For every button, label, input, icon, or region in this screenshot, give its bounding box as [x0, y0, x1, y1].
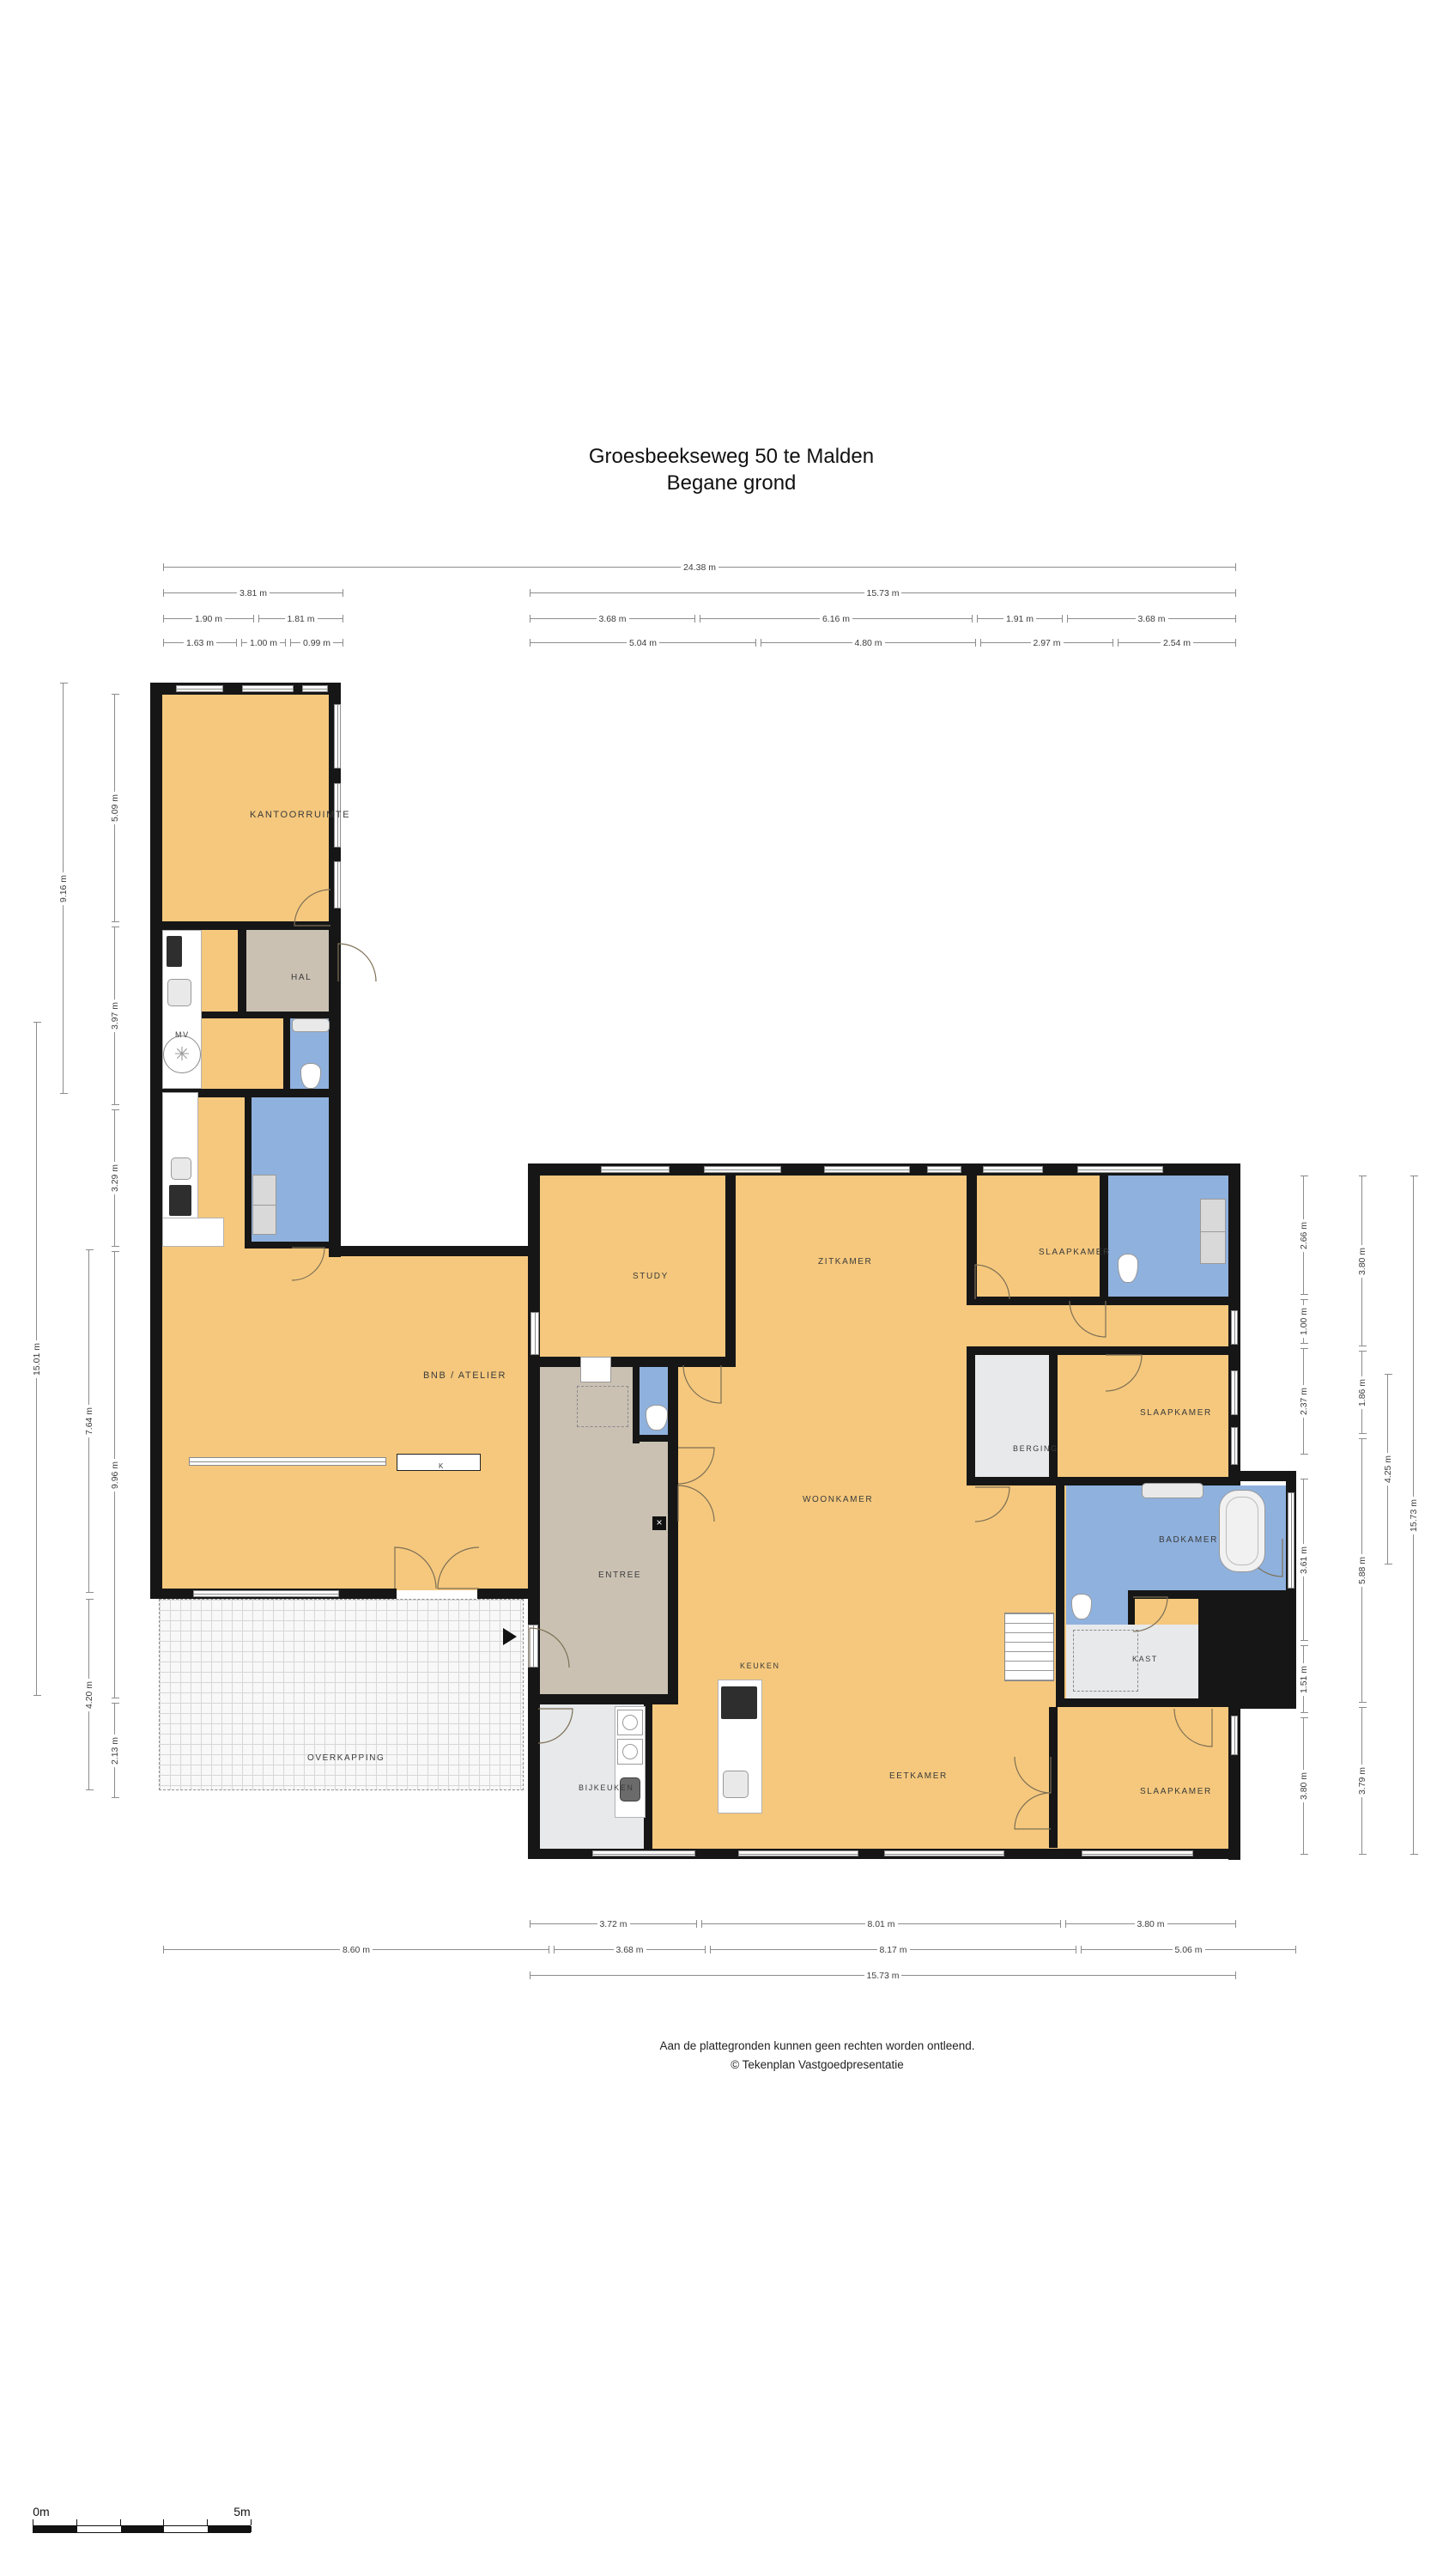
- scale-bar-segment: [33, 2526, 77, 2532]
- dimension-label: 1.00 m: [1299, 1305, 1309, 1338]
- plan-footer: Aan de plattegronden kunnen geen rechten…: [258, 2037, 1377, 2075]
- door-arc: [395, 1547, 436, 1589]
- dimension-label: 2.37 m: [1299, 1385, 1309, 1418]
- fixture-toilet: [1118, 1254, 1138, 1283]
- dimension-v: 3.29 m: [114, 1109, 115, 1247]
- dimension-v: 4.20 m: [88, 1599, 89, 1790]
- dimension-label: 6.16 m: [820, 614, 852, 624]
- door-arc: [975, 1265, 1009, 1299]
- fixture-shower: [252, 1175, 276, 1235]
- dimension-v: 15.01 m: [36, 1022, 37, 1696]
- fixture-washer: [617, 1710, 643, 1735]
- dimension-h: 15.73 m: [530, 1975, 1236, 1976]
- dimension-h: 3.68 m: [554, 1949, 706, 1950]
- floorplan-canvas: ✳×KANTOORRUIMTEHALMVBNB / ATELIERKOVERKA…: [0, 0, 1449, 2576]
- scale-bar-end-label: 5m: [233, 2505, 250, 2518]
- scale-bar-tick: [163, 2519, 164, 2525]
- dimension-v: 3.80 m: [1303, 1717, 1304, 1855]
- scale-bar-tick: [120, 2519, 121, 2525]
- dimension-h: 6.16 m: [700, 618, 973, 619]
- dimension-v: 1.00 m: [1303, 1299, 1304, 1344]
- door-arc: [1015, 1793, 1051, 1829]
- dimension-label: 4.80 m: [852, 638, 884, 648]
- dimension-label: 3.68 m: [613, 1945, 646, 1955]
- door-arc: [678, 1485, 714, 1522]
- dimension-label: 3.61 m: [1299, 1543, 1309, 1576]
- dimension-v: 9.16 m: [63, 683, 64, 1094]
- fixture-counter: [162, 1218, 224, 1247]
- dimension-label: 1.63 m: [184, 638, 216, 648]
- dimension-label: 3.81 m: [237, 588, 270, 598]
- dimension-label: 2.13 m: [110, 1734, 120, 1766]
- dimension-v: 3.97 m: [114, 927, 115, 1105]
- dimension-label: 3.29 m: [110, 1162, 120, 1194]
- dimension-label: 9.16 m: [58, 872, 69, 904]
- dimension-h: 2.97 m: [980, 642, 1113, 643]
- dimension-label: 3.80 m: [1134, 1919, 1167, 1929]
- fixture-sink: [1142, 1483, 1203, 1498]
- fixture-hob: [169, 1185, 191, 1216]
- dimension-label: 5.09 m: [110, 792, 120, 824]
- footer-disclaimer: Aan de plattegronden kunnen geen rechten…: [258, 2037, 1377, 2056]
- dimension-label: 1.90 m: [192, 614, 225, 624]
- dimension-h: 3.68 m: [530, 618, 695, 619]
- dimension-label: 1.00 m: [247, 638, 280, 648]
- dimension-label: 1.81 m: [284, 614, 317, 624]
- dimension-v: 5.88 m: [1361, 1438, 1362, 1703]
- dimension-label: 5.04 m: [627, 638, 659, 648]
- fixture-tub: [1219, 1490, 1265, 1572]
- scale-bar-start-label: 0m: [33, 2505, 49, 2518]
- fixture-hob: [721, 1686, 757, 1719]
- scale-bar-track: [33, 2525, 251, 2533]
- door-arc: [292, 1248, 324, 1280]
- dimension-label: 0.99 m: [300, 638, 333, 648]
- dimension-v: 3.79 m: [1361, 1707, 1362, 1855]
- dimension-v: 3.61 m: [1303, 1479, 1304, 1641]
- dimension-v: 15.73 m: [1413, 1176, 1414, 1855]
- fixture-sink: [171, 1157, 191, 1180]
- door-arcs-layer: [0, 0, 1449, 2576]
- dimension-v: 2.66 m: [1303, 1176, 1304, 1295]
- dimension-v: 9.96 m: [114, 1251, 115, 1698]
- dimension-label: 1.51 m: [1299, 1662, 1309, 1695]
- dimension-label: 2.66 m: [1299, 1218, 1309, 1251]
- fixture-fan: ✳: [163, 1036, 201, 1073]
- dimension-h: 0.99 m: [290, 642, 343, 643]
- dimension-h: 24.38 m: [163, 567, 1236, 568]
- scale-bar-tick: [251, 2519, 252, 2525]
- dimension-label: 2.54 m: [1161, 638, 1193, 648]
- fixture-wardrobe: [580, 1357, 611, 1382]
- door-arc: [1106, 1355, 1142, 1391]
- dimension-label: 15.01 m: [32, 1340, 42, 1378]
- dimension-h: 8.17 m: [710, 1949, 1076, 1950]
- fixture-stairs: [1004, 1613, 1054, 1681]
- fixture-arrow: [503, 1628, 517, 1645]
- dimension-h: 1.63 m: [163, 642, 237, 643]
- fixture-dashed: [577, 1386, 628, 1427]
- dimension-v: 2.13 m: [114, 1703, 115, 1798]
- fixture-dashed: [1073, 1630, 1138, 1692]
- door-arc: [530, 1628, 569, 1668]
- fixture-toilet: [300, 1063, 321, 1089]
- fixture-toilet: [1071, 1594, 1092, 1619]
- scale-bar-segment: [77, 2526, 121, 2532]
- dimension-label: 1.86 m: [1357, 1376, 1367, 1408]
- dimension-h: 5.04 m: [530, 642, 756, 643]
- dimension-v: 2.37 m: [1303, 1348, 1304, 1455]
- door-arc: [1070, 1301, 1106, 1337]
- dimension-label: 3.72 m: [597, 1919, 629, 1929]
- dimension-v: 1.86 m: [1361, 1351, 1362, 1434]
- dimension-label: 5.06 m: [1172, 1945, 1204, 1955]
- dimension-h: 15.73 m: [530, 592, 1236, 593]
- scale-bar-tick: [33, 2519, 33, 2525]
- dimension-label: 8.17 m: [876, 1945, 909, 1955]
- door-arc: [438, 1547, 479, 1589]
- door-arc: [538, 1709, 573, 1743]
- dimension-v: 3.80 m: [1361, 1176, 1362, 1346]
- dimension-label: 3.68 m: [596, 614, 628, 624]
- dimension-label: 3.80 m: [1299, 1770, 1309, 1802]
- fixture-washer: [617, 1739, 643, 1765]
- dimension-label: 3.68 m: [1135, 614, 1167, 624]
- dimension-h: 2.54 m: [1118, 642, 1236, 643]
- door-arc: [975, 1487, 1009, 1522]
- fixture-hob: [167, 936, 182, 967]
- dimension-label: 15.73 m: [864, 588, 902, 598]
- dimension-label: 8.60 m: [340, 1945, 373, 1955]
- door-arc: [338, 944, 376, 981]
- dimension-label: 1.91 m: [1003, 614, 1036, 624]
- dimension-v: 4.25 m: [1387, 1374, 1388, 1564]
- fixture-sink: [167, 979, 191, 1006]
- door-arc: [678, 1448, 714, 1484]
- dimension-label: 2.97 m: [1030, 638, 1063, 648]
- scale-bar-segment: [164, 2526, 208, 2532]
- dimension-h: 3.80 m: [1065, 1923, 1236, 1924]
- dimension-label: 4.20 m: [84, 1678, 94, 1710]
- fixture-shower: [1200, 1199, 1226, 1264]
- footer-copyright: © Tekenplan Vastgoedpresentatie: [258, 2056, 1377, 2075]
- fixture-xmark: ×: [652, 1516, 666, 1530]
- dimension-label: 3.97 m: [110, 999, 120, 1032]
- scale-bar-segment: [121, 2526, 165, 2532]
- dimension-h: 3.81 m: [163, 592, 343, 593]
- dimension-label: 3.79 m: [1357, 1765, 1367, 1797]
- door-arc: [1174, 1709, 1212, 1747]
- scale-bar-tick: [76, 2519, 77, 2525]
- door-arc: [294, 890, 330, 926]
- dimension-h: 3.68 m: [1067, 618, 1236, 619]
- dimension-h: 1.81 m: [258, 618, 343, 619]
- dimension-label: 8.01 m: [864, 1919, 897, 1929]
- dimension-h: 4.80 m: [761, 642, 976, 643]
- dimension-label: 15.73 m: [864, 1971, 902, 1981]
- dimension-h: 5.06 m: [1081, 1949, 1296, 1950]
- fixture-toilet: [646, 1405, 668, 1431]
- dimension-label: 24.38 m: [681, 562, 718, 573]
- dimension-label: 3.80 m: [1357, 1244, 1367, 1277]
- fixture-sink: [723, 1771, 749, 1798]
- scale-bar-segment: [208, 2526, 252, 2532]
- dimension-h: 8.60 m: [163, 1949, 549, 1950]
- dimension-h: 8.01 m: [701, 1923, 1061, 1924]
- dimension-label: 4.25 m: [1383, 1453, 1393, 1485]
- dimension-h: 3.72 m: [530, 1923, 697, 1924]
- door-arc: [1015, 1757, 1051, 1793]
- dimension-label: 9.96 m: [110, 1458, 120, 1491]
- dimension-h: 1.91 m: [977, 618, 1063, 619]
- dimension-h: 1.90 m: [163, 618, 254, 619]
- dimension-v: 7.64 m: [88, 1249, 89, 1593]
- door-arc: [1133, 1597, 1167, 1631]
- dimension-v: 1.51 m: [1303, 1645, 1304, 1713]
- dimension-h: 1.00 m: [241, 642, 286, 643]
- dimension-v: 5.09 m: [114, 694, 115, 922]
- dimension-label: 15.73 m: [1409, 1497, 1419, 1534]
- fixture-sink: [292, 1018, 330, 1032]
- floorplan-page: Groesbeekseweg 50 te Malden Begane grond…: [0, 0, 1449, 2576]
- dimension-label: 7.64 m: [84, 1405, 94, 1437]
- door-arc: [683, 1365, 721, 1403]
- dimension-label: 5.88 m: [1357, 1554, 1367, 1587]
- scale-bar-tick: [207, 2519, 208, 2525]
